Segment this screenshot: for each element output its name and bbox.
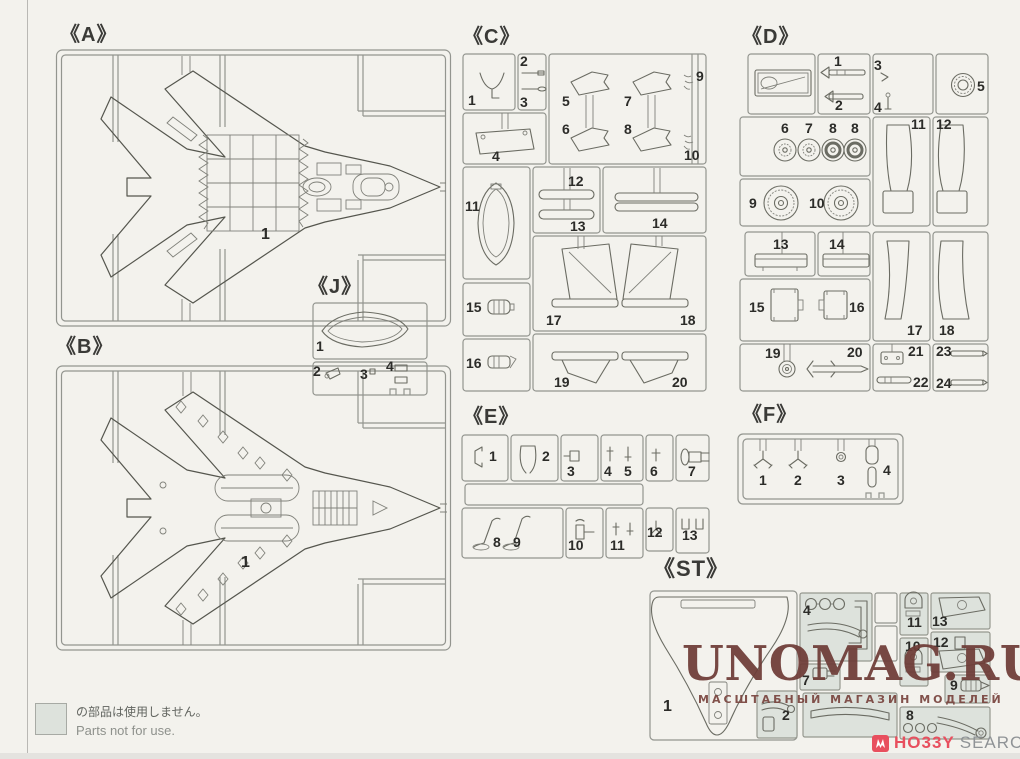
part-number: 14 <box>829 236 845 252</box>
part-number: 1 <box>468 92 476 108</box>
part-number: 20 <box>847 344 863 360</box>
part-number: 1 <box>834 53 842 69</box>
part-number: 1 <box>261 226 270 243</box>
sprue-frame-b <box>57 366 451 650</box>
f35-bottom-view-drawing <box>101 372 447 645</box>
part-number: 4 <box>604 463 612 479</box>
part-number: 1 <box>759 472 767 488</box>
part-number: 4 <box>386 358 394 374</box>
section-j: 《J》 1 2 3 4 <box>300 270 430 401</box>
section-d: 《D》 <box>735 20 991 395</box>
part-number: 8 <box>829 120 837 136</box>
section-c-sprue: 1 2 3 4 5 6 7 8 9 10 11 12 13 14 15 16 1… <box>458 53 708 395</box>
part-number: 8 <box>906 707 914 723</box>
part-number: 18 <box>680 312 696 328</box>
part-number: 5 <box>977 78 985 94</box>
instruction-sheet-page: 《A》 <box>0 0 1020 759</box>
part-number: 11 <box>610 537 625 553</box>
part-number: 2 <box>835 97 843 113</box>
part-number: 10 <box>809 195 825 211</box>
part-number: 6 <box>562 121 570 137</box>
part-number: 21 <box>908 343 924 359</box>
part-number: 16 <box>849 299 865 315</box>
legend-swatch <box>35 703 67 735</box>
part-number: 20 <box>672 374 688 390</box>
part-number: 7 <box>688 463 696 479</box>
part-number: 2 <box>782 707 790 723</box>
part-number: 10 <box>905 638 921 654</box>
section-a-label: 《A》 <box>60 18 455 47</box>
section-c-label: 《C》 <box>463 20 708 49</box>
part-number: 12 <box>568 173 584 189</box>
part-number: 10 <box>684 147 700 163</box>
section-f: 《F》 1 2 3 4 <box>735 398 907 509</box>
part-number: 2 <box>313 363 321 379</box>
section-d-label: 《D》 <box>742 20 991 49</box>
part-number: 4 <box>803 602 811 618</box>
part-number: 7 <box>624 93 632 109</box>
part-number: 1 <box>489 448 497 464</box>
part-number: 17 <box>907 322 923 338</box>
part-number: 14 <box>652 215 668 231</box>
part-number: 1 <box>241 554 250 571</box>
part-number: 18 <box>939 322 955 338</box>
section-f-sprue: 1 2 3 4 <box>735 431 907 509</box>
part-number: 8 <box>493 534 501 550</box>
part-number: 8 <box>851 120 859 136</box>
part-number: 13 <box>932 613 948 629</box>
part-number: 9 <box>513 534 521 550</box>
section-j-label: 《J》 <box>308 270 430 299</box>
part-number: 1 <box>316 338 324 354</box>
section-c: 《C》 <box>458 20 708 395</box>
part-number: 3 <box>567 463 575 479</box>
part-number: 19 <box>765 345 781 361</box>
part-number: 11 <box>907 614 922 630</box>
section-j-sprue: 1 2 3 4 <box>300 301 430 401</box>
legend-text-en: Parts not for use. <box>76 723 208 738</box>
logo-text-search: SEARCH <box>960 733 1020 753</box>
part-number: 17 <box>546 312 562 328</box>
part-number: 9 <box>749 195 757 211</box>
part-number: 3 <box>874 57 882 73</box>
section-st-sprue: 1 2 4 7 8 9 10 11 12 13 <box>645 587 995 747</box>
part-number: 6 <box>650 463 658 479</box>
part-number: 22 <box>913 374 929 390</box>
part-number: 5 <box>562 93 570 109</box>
part-number: 11 <box>465 198 480 214</box>
canopy-part <box>322 312 408 347</box>
part-number: 24 <box>936 375 952 391</box>
section-e-sprue: 1 2 3 4 5 6 7 8 9 10 11 12 13 <box>458 433 712 563</box>
sprue-frame-d <box>740 54 988 391</box>
part-number: 12 <box>933 634 949 650</box>
part-number: 23 <box>936 343 952 359</box>
part-number: 4 <box>492 148 500 164</box>
page-edge-line <box>27 0 28 759</box>
section-e-label: 《E》 <box>463 400 712 429</box>
part-number: 5 <box>624 463 632 479</box>
part-number: 12 <box>936 116 952 132</box>
part-number: 3 <box>837 472 845 488</box>
part-number: 2 <box>794 472 802 488</box>
part-number: 4 <box>874 99 882 115</box>
part-number: 16 <box>466 355 482 371</box>
section-e: 《E》 <box>458 400 712 563</box>
section-st: 《ST》 <box>645 551 995 747</box>
part-number: 7 <box>805 120 813 136</box>
page-bottom-edge <box>0 753 1020 759</box>
part-number: 13 <box>682 527 698 543</box>
part-number: 3 <box>360 366 368 382</box>
section-f-label: 《F》 <box>742 398 907 427</box>
part-number: 10 <box>568 537 584 553</box>
section-d-sprue: 1 2 3 4 5 6 7 8 8 9 10 11 12 13 14 15 16… <box>735 53 991 395</box>
part-number: 8 <box>624 121 632 137</box>
part-number: 15 <box>749 299 765 315</box>
part-number: 13 <box>773 236 789 252</box>
part-number: 19 <box>554 374 570 390</box>
part-number: 7 <box>802 672 810 688</box>
section-st-label: 《ST》 <box>653 551 995 583</box>
part-number: 3 <box>520 94 528 110</box>
part-number: 9 <box>950 677 958 693</box>
part-number: 2 <box>520 53 528 69</box>
part-number: 12 <box>647 524 663 540</box>
part-number: 9 <box>696 68 704 84</box>
legend-text-jp: の部品は使用しません。 <box>76 703 208 720</box>
part-number: 15 <box>466 299 482 315</box>
part-number: 1 <box>663 698 672 715</box>
hobby-search-logo: HO33Y SEARCH <box>872 733 1020 753</box>
parts-f <box>754 439 884 498</box>
logo-text-hobby: HO33Y <box>894 733 955 753</box>
part-number: 2 <box>542 448 550 464</box>
part-number: 13 <box>570 218 586 234</box>
part-number: 11 <box>911 116 926 132</box>
part-number: 4 <box>883 462 891 478</box>
wheel-parts <box>774 139 866 161</box>
part-number: 6 <box>781 120 789 136</box>
hobby-search-icon <box>872 735 889 752</box>
section-b-sprue: 1 <box>55 363 455 655</box>
not-for-use-legend: の部品は使用しません。 Parts not for use. <box>35 703 208 738</box>
